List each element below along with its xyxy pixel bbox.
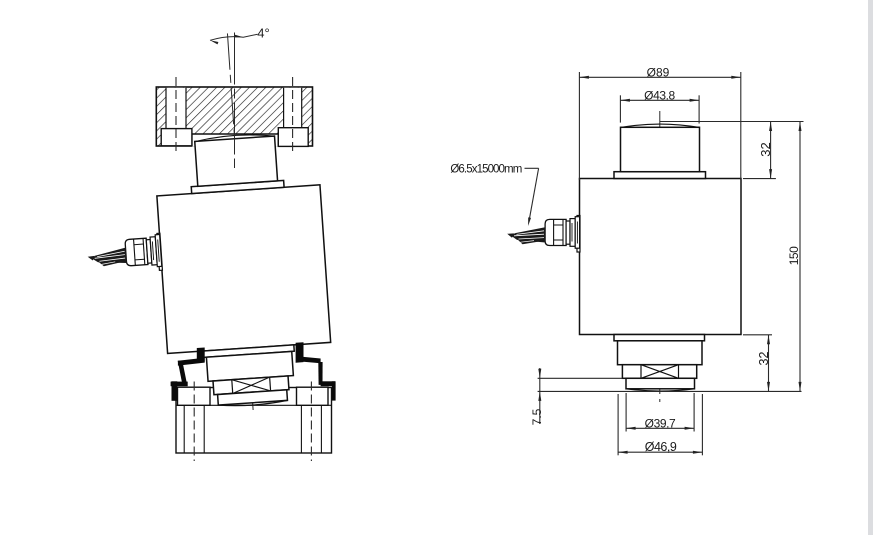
svg-text:4°: 4° xyxy=(257,26,269,41)
svg-text:32: 32 xyxy=(757,352,771,366)
svg-text:Ø43.8: Ø43.8 xyxy=(644,88,675,102)
svg-text:150: 150 xyxy=(787,246,801,265)
svg-text:32: 32 xyxy=(758,142,773,156)
svg-text:Ø89: Ø89 xyxy=(647,65,670,79)
svg-text:Ø39.7: Ø39.7 xyxy=(645,416,676,430)
svg-text:7.5: 7.5 xyxy=(530,408,544,425)
svg-text:Ø46,9: Ø46,9 xyxy=(645,440,677,454)
svg-text:Ø6.5x15000mm: Ø6.5x15000mm xyxy=(450,163,521,175)
